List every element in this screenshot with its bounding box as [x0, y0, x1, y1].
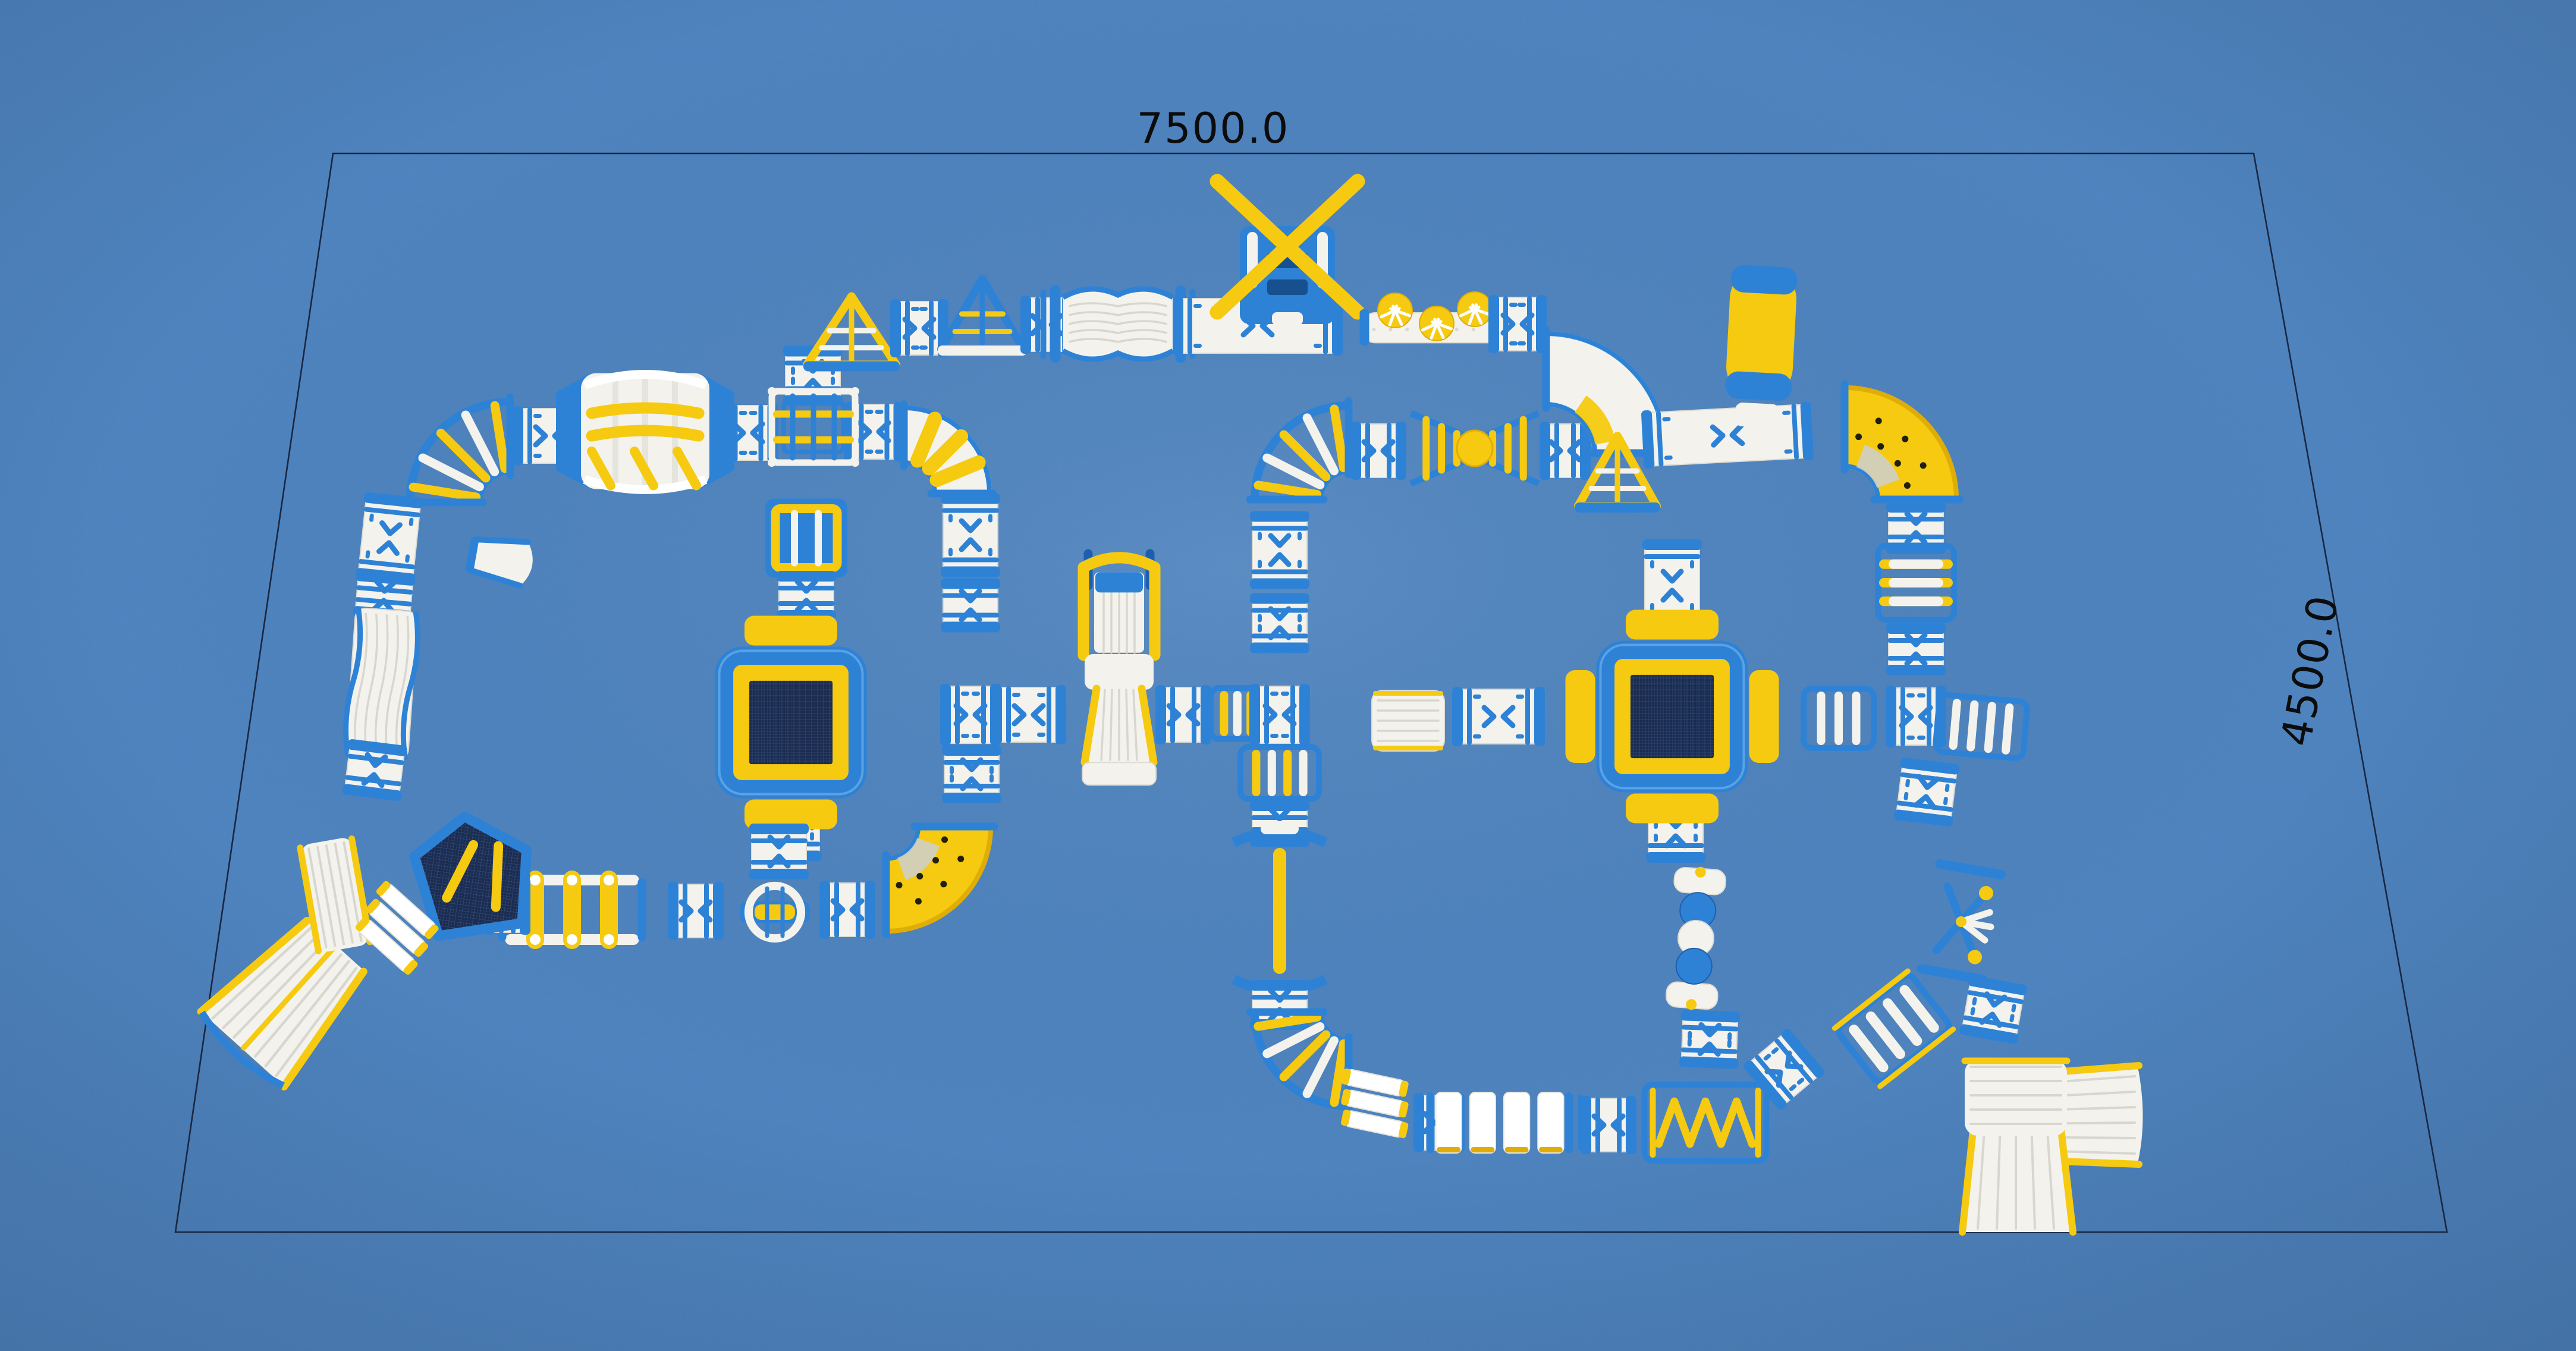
- walkway: [1452, 687, 1545, 746]
- walkway: [1350, 422, 1406, 480]
- walkway: [1488, 295, 1547, 353]
- flat-ladder: [765, 499, 847, 578]
- walkway: [1250, 593, 1309, 653]
- water-park-layout-render: 7500.0 4500.0: [0, 0, 2576, 1351]
- walkway: [668, 882, 724, 940]
- walkway: [1155, 685, 1211, 744]
- walkway: [1886, 623, 1946, 675]
- arch-bridge: [556, 373, 734, 490]
- walkway: [749, 824, 809, 879]
- width-dimension-label: 7500.0: [1137, 104, 1290, 153]
- jump-trampoline: [715, 616, 867, 830]
- walkway: [1679, 1010, 1740, 1069]
- walkway: [941, 494, 1000, 577]
- walkway: [356, 492, 424, 585]
- climb-wedge: [1372, 690, 1444, 751]
- walkway: [1641, 402, 1814, 469]
- walkway: [941, 579, 1000, 633]
- walkway: [1540, 422, 1591, 480]
- wave-book-bridge: [1041, 285, 1196, 363]
- walkway: [1250, 511, 1309, 589]
- walkway: [1581, 1096, 1636, 1154]
- walkway: [942, 745, 1001, 803]
- render-canvas: 7500.0 4500.0: [0, 0, 2576, 1351]
- walkway: [819, 881, 875, 939]
- walkway: [777, 571, 836, 621]
- walkway: [1893, 757, 1960, 827]
- wiggle-bridge: [344, 607, 420, 760]
- walkway-junction: [1249, 684, 1310, 746]
- walkway: [342, 739, 408, 801]
- walkway: [991, 685, 1066, 744]
